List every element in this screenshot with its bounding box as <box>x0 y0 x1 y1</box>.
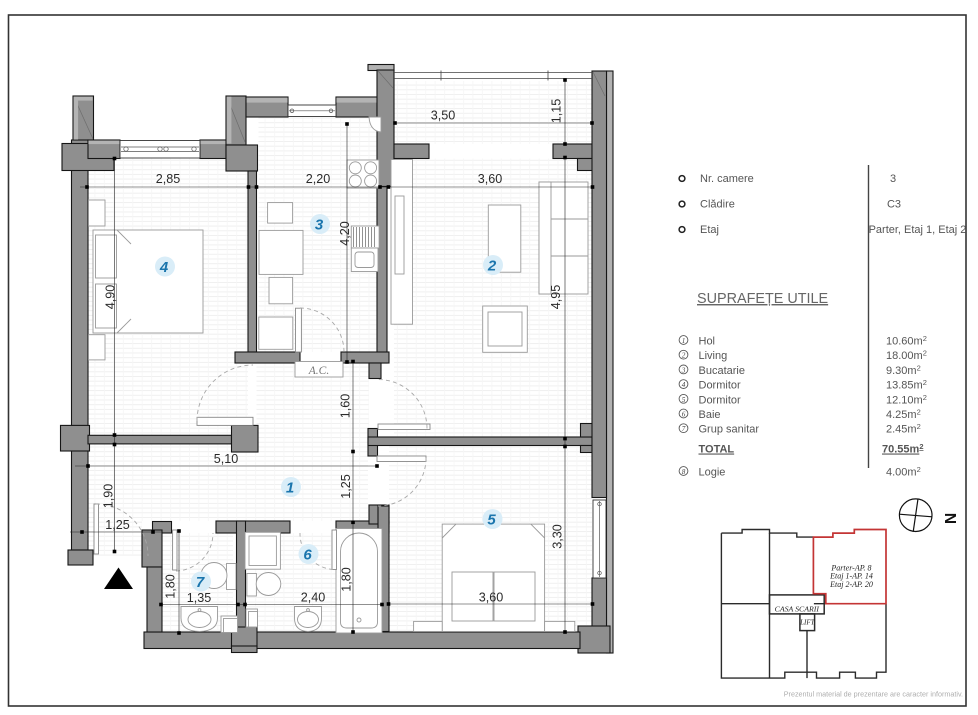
svg-text:5: 5 <box>487 512 496 529</box>
svg-text:7: 7 <box>196 574 205 591</box>
svg-text:Bucatarie: Bucatarie <box>699 365 745 377</box>
svg-text:3,60: 3,60 <box>478 172 503 186</box>
svg-text:6: 6 <box>682 411 686 419</box>
svg-text:SUPRAFEȚE UTILE: SUPRAFEȚE UTILE <box>697 291 828 307</box>
svg-text:4.25m2: 4.25m2 <box>886 408 921 422</box>
svg-text:Grup sanitar: Grup sanitar <box>699 424 760 436</box>
svg-text:Dormitor: Dormitor <box>699 394 742 406</box>
svg-text:Parter, Etaj 1, Etaj 2: Parter, Etaj 1, Etaj 2 <box>869 224 967 236</box>
svg-text:4,90: 4,90 <box>104 285 118 310</box>
svg-text:Dormitor: Dormitor <box>699 380 742 392</box>
svg-text:1: 1 <box>286 480 294 497</box>
svg-text:1,80: 1,80 <box>340 567 354 592</box>
svg-text:2: 2 <box>682 352 686 360</box>
svg-text:8: 8 <box>682 468 686 476</box>
svg-text:1,25: 1,25 <box>339 474 353 499</box>
svg-text:Etaj 2-AP. 20: Etaj 2-AP. 20 <box>829 580 873 589</box>
svg-text:TOTAL: TOTAL <box>699 444 735 456</box>
svg-text:2,20: 2,20 <box>306 172 331 186</box>
svg-text:4: 4 <box>159 259 169 276</box>
svg-text:4,95: 4,95 <box>549 285 563 310</box>
svg-text:6: 6 <box>303 547 312 564</box>
svg-text:LIFT: LIFT <box>799 619 816 627</box>
svg-text:2: 2 <box>487 258 497 275</box>
svg-text:Clădire: Clădire <box>700 199 735 211</box>
svg-text:4.00m2: 4.00m2 <box>886 465 921 479</box>
svg-text:12.10m2: 12.10m2 <box>886 393 927 407</box>
svg-text:7: 7 <box>682 425 686 433</box>
svg-text:1,90: 1,90 <box>102 484 116 509</box>
svg-text:Etaj: Etaj <box>700 224 719 236</box>
svg-text:Hol: Hol <box>699 336 716 348</box>
svg-text:Baie: Baie <box>699 409 721 421</box>
svg-text:Living: Living <box>699 350 728 362</box>
svg-text:18.00m2: 18.00m2 <box>886 349 927 363</box>
svg-text:3: 3 <box>315 217 324 234</box>
svg-text:2,40: 2,40 <box>301 591 326 605</box>
svg-text:2,85: 2,85 <box>156 172 181 186</box>
svg-text:3,30: 3,30 <box>551 524 565 549</box>
svg-text:3: 3 <box>890 173 896 185</box>
svg-text:2.45m2: 2.45m2 <box>886 422 921 436</box>
svg-text:1,60: 1,60 <box>339 394 353 419</box>
svg-text:Prezentul material de prezenta: Prezentul material de prezentare are car… <box>784 690 963 699</box>
svg-text:70.55m2: 70.55m2 <box>882 442 923 456</box>
svg-text:A.C.: A.C. <box>308 365 329 377</box>
svg-text:5: 5 <box>682 396 686 404</box>
svg-text:3,50: 3,50 <box>431 109 456 123</box>
svg-text:13.85m2: 13.85m2 <box>886 378 927 392</box>
svg-text:3,60: 3,60 <box>479 591 504 605</box>
svg-text:CASA SCARII: CASA SCARII <box>775 605 820 614</box>
svg-text:C3: C3 <box>887 199 901 211</box>
svg-text:4,20: 4,20 <box>338 221 352 246</box>
svg-text:4: 4 <box>682 381 686 389</box>
svg-text:1,25: 1,25 <box>105 518 130 532</box>
svg-text:1,35: 1,35 <box>187 591 212 605</box>
svg-text:1,15: 1,15 <box>550 99 564 124</box>
svg-text:5,10: 5,10 <box>214 452 239 466</box>
svg-text:3: 3 <box>681 366 686 374</box>
svg-text:9.30m2: 9.30m2 <box>886 363 921 377</box>
svg-text:1: 1 <box>682 337 686 345</box>
svg-text:10.60m2: 10.60m2 <box>886 334 927 348</box>
svg-text:1,80: 1,80 <box>164 574 178 599</box>
svg-text:Logie: Logie <box>699 467 726 479</box>
svg-text:N: N <box>941 513 958 524</box>
svg-text:Nr. camere: Nr. camere <box>700 173 754 185</box>
